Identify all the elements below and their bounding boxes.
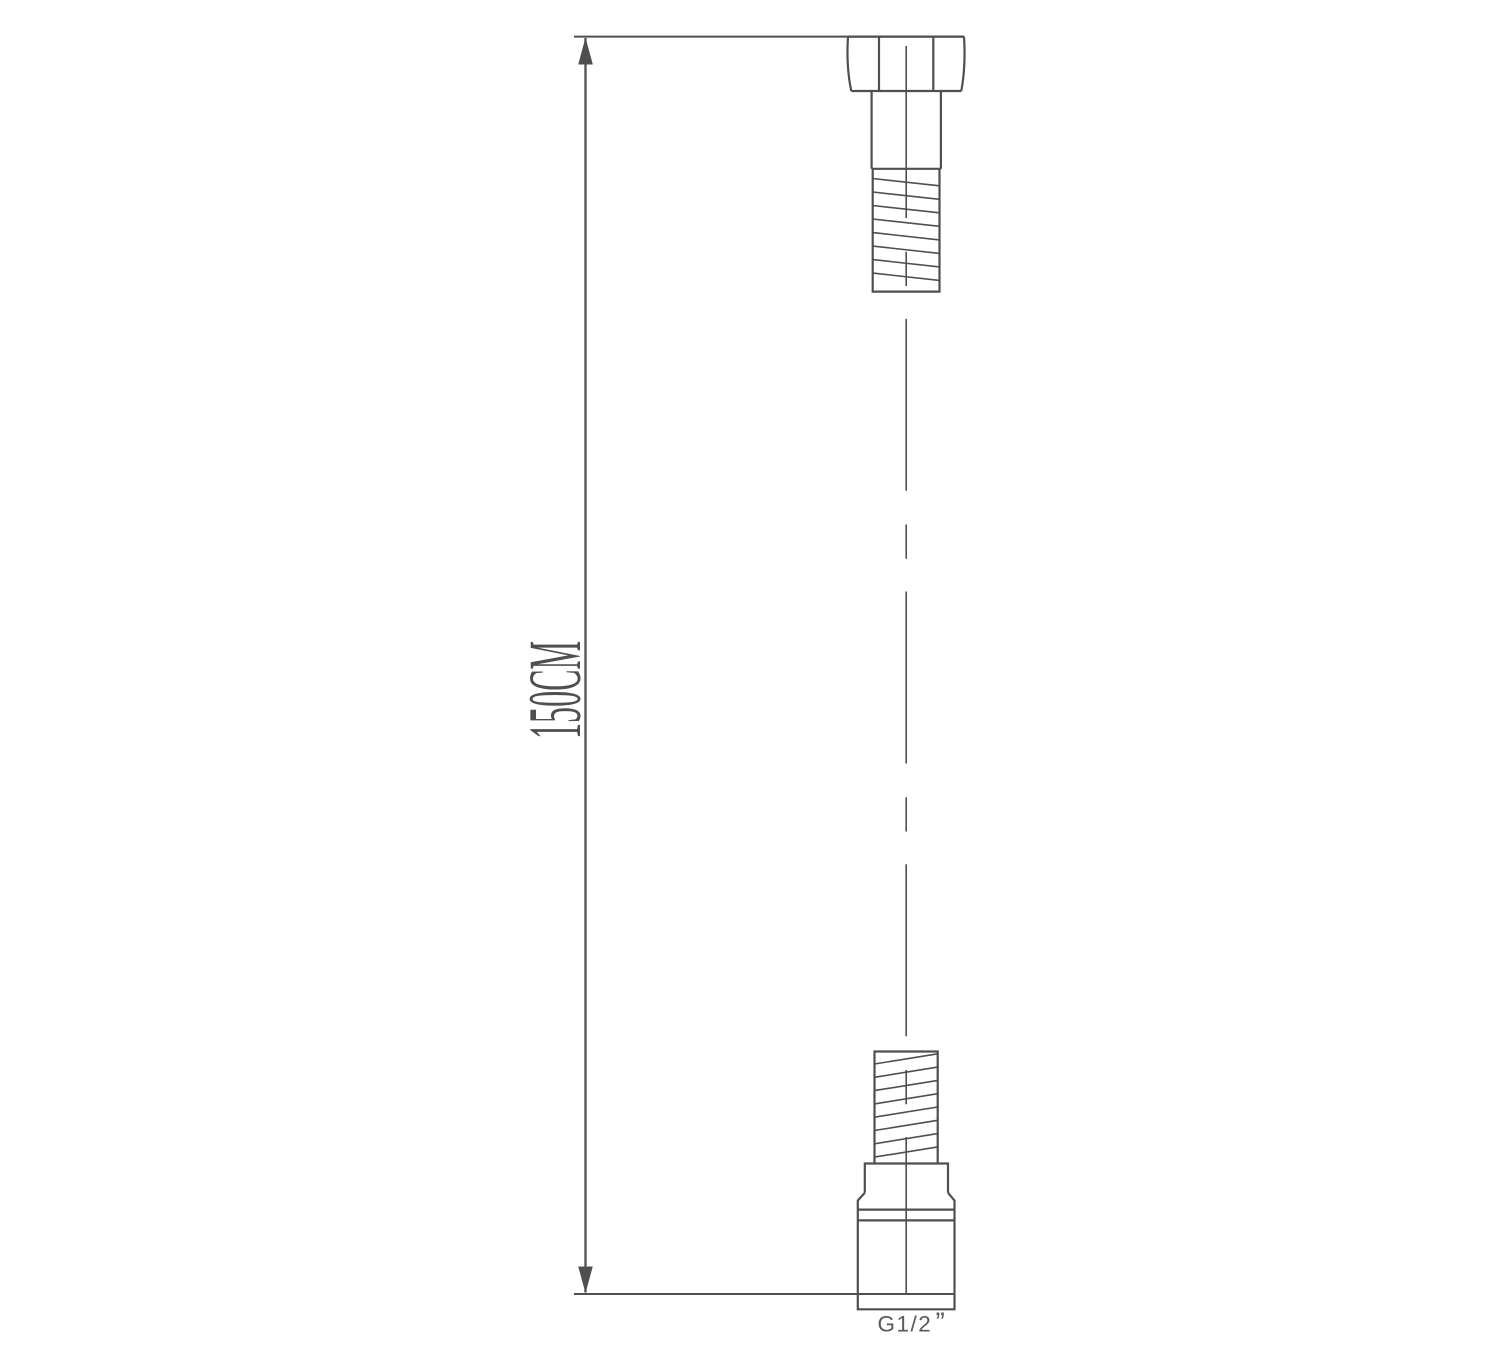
svg-text:150CM: 150CM: [514, 641, 597, 739]
svg-text:G1/2: G1/2: [878, 1312, 933, 1337]
svg-text:”: ”: [936, 1307, 945, 1338]
